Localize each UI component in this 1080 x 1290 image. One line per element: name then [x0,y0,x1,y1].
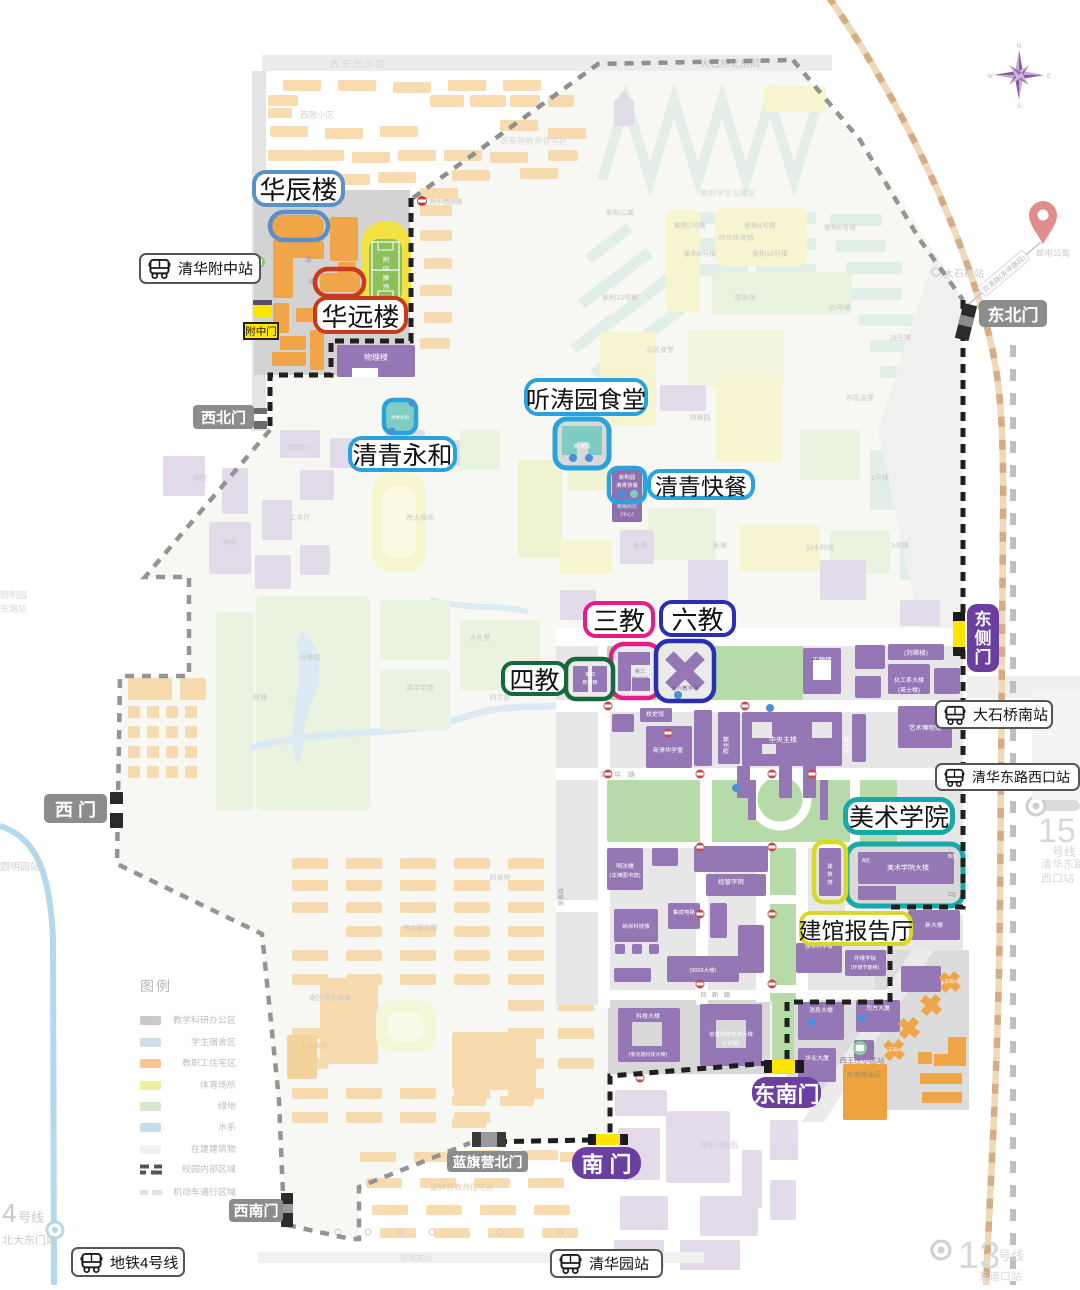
svg-text:信息科学技术大楼: 信息科学技术大楼 [709,1031,754,1038]
svg-text:西 王 庄 小 区: 西 王 庄 小 区 [330,59,385,69]
svg-text:清青永和: 清青永和 [391,415,409,420]
svg-text:圆明园: 圆明园 [0,590,27,600]
svg-text:清: 清 [305,256,312,264]
svg-text:W: W [987,74,993,80]
svg-text:新大楼: 新大楼 [925,921,943,929]
svg-text:S: S [1017,104,1021,110]
svg-text:路: 路 [724,991,731,999]
svg-text:百草苑教师住宅区: 百草苑教师住宅区 [500,136,569,146]
svg-text:集成电路: 集成电路 [673,909,696,916]
svg-text:紫荆6号楼: 紫荆6号楼 [824,224,856,232]
svg-text:(中心): (中心) [620,511,634,518]
svg-text:司方大厦: 司方大厦 [866,1004,890,1012]
svg-text:(英士楼): (英士楼) [898,686,920,694]
svg-text:号线: 号线 [1052,845,1076,859]
svg-text:清青快餐: 清青快餐 [616,482,639,489]
svg-text:东南商业区: 东南商业区 [847,1071,882,1079]
svg-text:(刘卿楼): (刘卿楼) [904,649,928,657]
svg-text:紫荆4号楼: 紫荆4号楼 [744,222,776,230]
svg-text:附: 附 [383,256,390,264]
svg-text:紫荆13号楼: 紫荆13号楼 [602,294,638,302]
svg-text:科技大楼: 科技大楼 [636,1012,660,1020]
svg-text:物理楼: 物理楼 [364,353,388,362]
svg-text:邮电公寓: 邮电公寓 [1036,248,1070,258]
svg-text:经管学院: 经管学院 [718,878,745,886]
svg-text:紫荆园: 紫荆园 [619,474,636,481]
svg-text:操: 操 [383,274,390,282]
svg-text:西王庄小区站: 西王庄小区站 [840,1056,885,1065]
svg-text:西苑小区: 西苑小区 [300,110,335,120]
svg-text:蓝旗营教师住宅区: 蓝旗营教师住宅区 [430,1183,494,1192]
svg-text:紫荆公寓: 紫荆公寓 [606,209,634,217]
svg-text:北区食堂: 北区食堂 [646,346,674,354]
svg-text:荷清苑站: 荷清苑站 [400,1254,432,1263]
svg-text:教室楼: 教室楼 [582,679,597,686]
svg-text:华业大厦: 华业大厦 [805,1054,829,1062]
svg-text:综合体育馆: 综合体育馆 [719,234,754,242]
svg-text:(法律图书馆): (法律图书馆) [609,872,640,879]
svg-text:18号楼: 18号楼 [889,334,911,342]
svg-text:中央主楼: 中央主楼 [769,736,797,744]
svg-text:至善路: 至善路 [557,888,565,906]
svg-text:化工系大楼: 化工系大楼 [894,676,924,684]
svg-text:紫荆学生公寓区: 紫荆学生公寓区 [700,189,756,198]
svg-text:筑: 筑 [827,871,833,878]
svg-text:大礼堂: 大礼堂 [470,634,491,642]
svg-text:善斋: 善斋 [633,542,647,550]
svg-text:美术学院大楼: 美术学院大楼 [887,864,929,872]
svg-text:(FIT楼): (FIT楼) [722,1040,740,1047]
svg-text:明法楼: 明法楼 [616,862,634,870]
svg-text:清华学堂: 清华学堂 [406,684,434,692]
svg-text:五南4: 五南4 [888,1047,900,1052]
svg-text:清华科技园: 清华科技园 [698,1141,738,1150]
svg-text:中: 中 [383,265,390,273]
svg-text:消息大楼: 消息大楼 [809,1006,833,1014]
svg-text:B区: B区 [948,854,956,860]
svg-text:近春园: 近春园 [300,654,321,662]
svg-text:清华附小: 清华附小 [286,444,314,452]
svg-text:观畴园: 观畴园 [690,414,711,422]
svg-text:第六教学楼: 第六教学楼 [671,685,699,692]
svg-text:环境学院: 环境学院 [854,955,877,962]
svg-text:4: 4 [2,1198,16,1228]
svg-text:(9003大楼): (9003大楼) [690,967,717,974]
svg-text:C区: C区 [948,892,957,898]
svg-text:东主楼: 东主楼 [843,736,851,754]
svg-text:华: 华 [614,771,621,779]
svg-text:N: N [1017,44,1021,50]
svg-text:工物馆: 工物馆 [812,656,832,664]
svg-text:甲所: 甲所 [223,539,237,547]
svg-text:(环境节能楼): (环境节能楼) [851,964,880,971]
svg-text:西主楼: 西主楼 [722,736,730,754]
svg-text:纳米科技楼: 纳米科技楼 [622,923,650,930]
svg-text:西院: 西院 [193,474,207,482]
svg-text:紫荆8号楼: 紫荆8号楼 [684,250,716,258]
svg-text:北大东门站: 北大东门站 [2,1234,57,1247]
svg-text:同方部: 同方部 [490,694,511,702]
svg-text:西大操场: 西大操场 [406,514,434,522]
svg-text:新斋: 新斋 [713,542,727,550]
svg-text:工字厅: 工字厅 [290,514,311,522]
svg-text:A区: A区 [862,858,870,864]
svg-text:听涛园: 听涛园 [574,443,591,450]
svg-text:号线: 号线 [998,1248,1024,1263]
svg-text:(李兆基科技大楼): (李兆基科技大楼) [629,1051,668,1058]
svg-text:建: 建 [827,863,833,870]
svg-text:新: 新 [712,991,719,999]
svg-text:西口站: 西口站 [1041,872,1074,885]
svg-text:十五食堂: 十五食堂 [300,1042,328,1050]
svg-text:圆明园站: 圆明园站 [0,861,40,873]
svg-text:五道口站: 五道口站 [978,1270,1022,1283]
svg-text:旧水利馆: 旧水利馆 [806,544,834,552]
svg-text:新清华学堂: 新清华学堂 [653,746,683,754]
svg-text:照澜院: 照澜院 [490,874,511,882]
svg-text:号线: 号线 [18,1210,44,1225]
svg-text:第三: 第三 [634,668,646,675]
svg-text:教室楼: 教室楼 [632,676,649,683]
svg-text:南区学生宿舍: 南区学生宿舍 [309,994,351,1002]
svg-text:综合服务楼: 综合服务楼 [403,924,438,932]
svg-text:附中西侧路: 附中西侧路 [430,198,463,206]
svg-text:紫荆10号楼: 紫荆10号楼 [752,250,788,258]
svg-text:第四: 第四 [585,671,595,678]
svg-text:清华东路: 清华东路 [1041,858,1080,871]
svg-text:紫荆2号楼: 紫荆2号楼 [674,222,706,230]
svg-text:3号楼: 3号楼 [891,542,909,550]
svg-text:路: 路 [628,771,635,779]
svg-text:日: 日 [700,991,707,999]
svg-text:场: 场 [383,283,390,291]
svg-text:大石桥站: 大石桥站 [944,268,984,280]
svg-text:E: E [1047,74,1051,80]
svg-text:校史馆: 校史馆 [646,710,664,718]
svg-text:东路站: 东路站 [0,604,27,614]
svg-text:馆: 馆 [827,879,833,886]
svg-text:东区浴室: 东区浴室 [846,394,874,402]
svg-text:游泳馆: 游泳馆 [735,294,756,302]
svg-text:1号楼: 1号楼 [871,474,889,482]
svg-text:荷塘: 荷塘 [253,694,267,702]
svg-text:五南1: 五南1 [944,979,956,984]
svg-text:20号楼: 20号楼 [829,304,851,312]
